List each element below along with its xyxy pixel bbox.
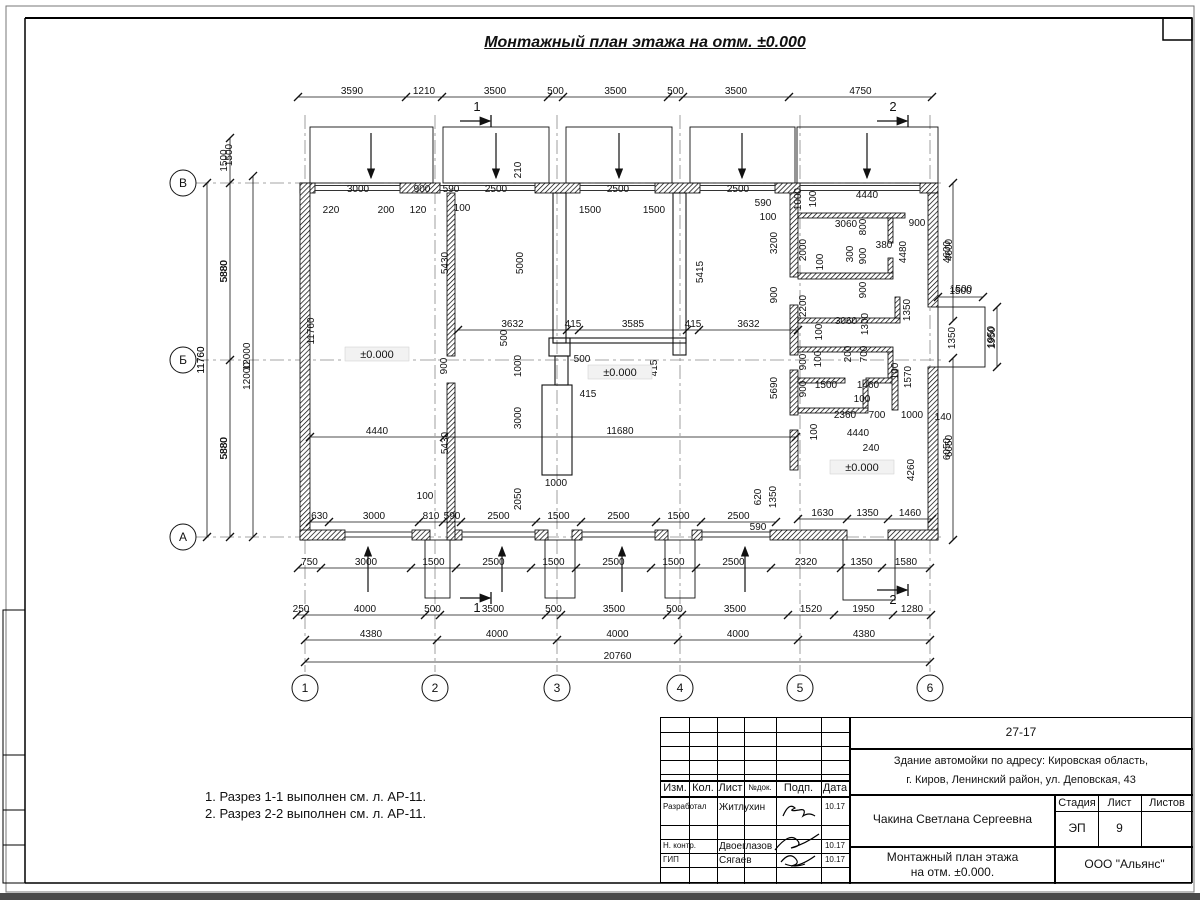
dim-label: 2500	[485, 184, 508, 195]
tb-name-gip: Сягаев	[719, 853, 775, 867]
dim-label: 4380	[360, 629, 383, 640]
dim-label: 240	[863, 443, 880, 454]
dim-label: 1500	[579, 205, 602, 216]
dim-label: 100	[815, 253, 826, 270]
dim-label: 590	[755, 198, 772, 209]
tb-date-developer: 10.17	[821, 800, 849, 815]
dim-label: 2000	[798, 238, 809, 261]
dim-label: 1350	[850, 557, 873, 568]
dim-label: 1	[473, 99, 480, 114]
dim-label: 140	[935, 412, 952, 423]
dim-label: 630	[311, 511, 328, 522]
dim-label: 900	[798, 353, 809, 370]
dim-label: А	[179, 530, 187, 544]
dim-label: 3590	[341, 86, 364, 97]
dim-label: 900	[909, 218, 926, 229]
dim-label: 3200	[769, 231, 780, 254]
dim-label: 1350	[856, 508, 879, 519]
dim-label: 300	[845, 245, 856, 262]
dim-label: 1350	[768, 485, 779, 508]
dim-label: 5430	[440, 431, 451, 454]
dim-label: 590	[443, 184, 460, 195]
dim-label: 900	[414, 184, 431, 195]
dim-label: 1280	[901, 604, 924, 615]
dim-label: 100	[890, 362, 901, 379]
dim-label: 1460	[899, 508, 922, 519]
dim-label: 5880	[219, 259, 230, 282]
dim-label: 1000	[545, 478, 568, 489]
dim-label: 900	[439, 357, 450, 374]
dim-label: 500	[666, 604, 683, 615]
tb-doc-number: 27-17	[849, 720, 1193, 746]
dim-label: 2	[432, 681, 439, 695]
tb-stage-value: ЭП	[1056, 813, 1098, 844]
tb-date-ncontrol: 10.17	[821, 839, 849, 853]
dim-label: 3500	[724, 604, 747, 615]
dim-label: 6050	[944, 434, 955, 457]
dim-label: 1500	[224, 143, 235, 166]
dim-label: 120	[410, 205, 427, 216]
dim-label: 1000	[513, 354, 524, 377]
dim-label: 1	[473, 600, 480, 615]
dim-label: 3500	[725, 86, 748, 97]
dim-label: 3000	[355, 557, 378, 568]
dim-label: 415	[685, 319, 702, 330]
dim-label: 1000	[793, 187, 804, 210]
dim-label: 12000	[242, 362, 253, 390]
dim-label: 3	[554, 681, 561, 695]
dim-label: 2	[889, 592, 896, 607]
dim-label: 2500	[607, 184, 630, 195]
tb-drawing-title-line2: на отм. ±0.000.	[851, 866, 1054, 880]
tb-name-developer: Житлухин	[719, 800, 775, 815]
dim-label: 1500	[667, 511, 690, 522]
dim-label: 1580	[895, 557, 918, 568]
tb-name-ncontrol: Двоеглазов	[719, 839, 775, 853]
dim-label: 4440	[366, 426, 389, 437]
dim-label: 2500	[482, 557, 505, 568]
dim-label: 3000	[347, 184, 370, 195]
dim-label: 900	[798, 380, 809, 397]
dim-label: 2050	[513, 487, 524, 510]
dim-label: 750	[301, 557, 318, 568]
tb-address-line1: Здание автомойки по адресу: Кировская об…	[853, 751, 1189, 771]
dim-label: 5880	[219, 436, 230, 459]
entrance-arrows-top	[371, 133, 867, 178]
dim-label: 11760	[196, 346, 207, 374]
dim-label: 2	[889, 99, 896, 114]
dim-label: 2320	[795, 557, 818, 568]
tb-client: Чакина Светлана Сергеевна	[851, 796, 1054, 844]
tb-drawing-title-line1: Монтажный план этажа	[851, 851, 1054, 865]
dim-label: 4480	[898, 240, 909, 263]
dim-label: В	[179, 176, 187, 190]
dim-label: 5430	[440, 251, 451, 274]
dim-label: 380	[876, 240, 893, 251]
tb-address-line2: г. Киров, Ленинский район, ул. Деповская…	[853, 770, 1189, 790]
dim-label: 800	[858, 218, 869, 235]
tb-col-list: Лист	[717, 781, 744, 796]
tb-stage-label: Стадия	[1056, 796, 1098, 810]
dim-label: 500	[545, 604, 562, 615]
dim-label: 1500	[547, 511, 570, 522]
dim-label: 1500	[542, 557, 565, 568]
dim-label: 250	[293, 604, 310, 615]
dim-label: Б	[179, 353, 187, 367]
tb-col-data: Дата	[821, 781, 849, 796]
tb-date-gip: 10.17	[821, 853, 849, 867]
dim-label: 2500	[727, 511, 750, 522]
dim-label: 3500	[604, 86, 627, 97]
dim-label: 200	[378, 205, 395, 216]
dim-label: 4440	[856, 190, 879, 201]
dim-label: 1210	[413, 86, 436, 97]
dim-label: 500	[424, 604, 441, 615]
dim-label: 590	[444, 511, 461, 522]
dim-label: 220	[323, 205, 340, 216]
dim-label: 2360	[834, 410, 857, 421]
dim-label: 100	[814, 323, 825, 340]
tb-company: ООО "Альянс"	[1056, 846, 1193, 884]
dim-label: ±0.000	[603, 367, 637, 379]
dim-label: 900	[769, 286, 780, 303]
drawing-sheet: 123456ВБА	[0, 0, 1200, 900]
dim-label: 5415	[695, 260, 706, 283]
tb-sheet-label: Лист	[1098, 796, 1141, 810]
dim-label: 4440	[847, 428, 870, 439]
dim-label: 415	[580, 389, 597, 400]
canopies	[310, 127, 938, 183]
dim-label: 1950	[852, 604, 875, 615]
dim-label: 11680	[606, 426, 634, 437]
dim-label: 2500	[602, 557, 625, 568]
tb-sheets-label: Листов	[1141, 796, 1193, 810]
tb-role-gip: ГИП	[663, 853, 717, 867]
dim-label: 200	[843, 345, 854, 362]
dim-label: 500	[667, 86, 684, 97]
dim-label: 1500	[643, 205, 666, 216]
dim-label: 1520	[800, 604, 823, 615]
dim-label: 1000	[901, 410, 924, 421]
dim-label: 810	[423, 511, 440, 522]
dim-label: 4000	[606, 629, 629, 640]
drawing-title: Монтажный план этажа на отм. ±0.000	[430, 34, 860, 52]
tb-sheet-value: 9	[1098, 813, 1141, 844]
dim-label: 4750	[849, 86, 872, 97]
dim-label: 1300	[860, 312, 871, 335]
dim-label: 11760	[306, 317, 317, 345]
dim-label: 5690	[769, 376, 780, 399]
dim-label: 4000	[486, 629, 509, 640]
dim-label: 415	[565, 319, 582, 330]
dim-label: 1500	[662, 557, 685, 568]
dim-label: 100	[813, 350, 824, 367]
dim-label: 3060	[835, 219, 858, 230]
dim-label: 2500	[727, 184, 750, 195]
dim-label: 3500	[484, 86, 507, 97]
dim-label: 100	[808, 190, 819, 207]
dim-label: 20760	[604, 651, 632, 662]
dim-label: 1630	[811, 508, 834, 519]
dim-label: 3060	[835, 316, 858, 327]
dim-label: 4380	[853, 629, 876, 640]
dim-label: 500	[499, 329, 510, 346]
dim-label: 4	[677, 681, 684, 695]
dim-label: 4600	[944, 238, 955, 261]
dim-label: 3585	[622, 319, 645, 330]
dim-label: 5000	[515, 251, 526, 274]
dim-label: 5	[797, 681, 804, 695]
scan-edge-strip	[0, 893, 1200, 900]
dim-label: 500	[574, 354, 591, 365]
dim-label: 3500	[603, 604, 626, 615]
dim-label: ±0.000	[845, 462, 879, 474]
dim-label: 3632	[501, 319, 524, 330]
right-porch	[938, 307, 985, 367]
dim-label: 620	[753, 488, 764, 505]
signature-developer	[777, 798, 821, 824]
note-line: 1. Разрез 1-1 выполнен см. л. АР-11.	[205, 788, 426, 805]
dim-label: 2200	[798, 294, 809, 317]
dim-label: 4260	[906, 458, 917, 481]
tb-role-ncontrol: Н. контр.	[663, 839, 717, 853]
dim-label: 6	[927, 681, 934, 695]
dim-label: 4000	[727, 629, 750, 640]
dim-label: 2500	[607, 511, 630, 522]
dim-label: 100	[809, 423, 820, 440]
note-line: 2. Разрез 2-2 выполнен см. л. АР-11.	[205, 805, 426, 822]
notes: 1. Разрез 1-1 выполнен см. л. АР-11. 2. …	[205, 788, 426, 822]
dim-label: 210	[513, 161, 524, 178]
dim-label: 3500	[482, 604, 505, 615]
dim-label: 3632	[737, 319, 760, 330]
dim-label: 100	[760, 212, 777, 223]
dim-label: 1500	[422, 557, 445, 568]
tb-col-ndok: №док.	[744, 781, 776, 796]
signature-gip	[775, 848, 821, 870]
dim-label: ±0.000	[360, 349, 394, 361]
dim-label: 1460	[857, 380, 880, 391]
dim-label: 2500	[722, 557, 745, 568]
entrance-arrows-bottom	[368, 547, 745, 592]
dim-label: 1350	[947, 326, 958, 349]
dim-label: 500	[547, 86, 564, 97]
title-block: Изм. Кол. Лист №док. Подп. Дата Разработ…	[660, 717, 1192, 883]
dim-label: 1	[302, 681, 309, 695]
dim-label: 590	[750, 522, 767, 533]
dim-label: 100	[854, 394, 871, 405]
tb-col-izm: Изм.	[661, 781, 689, 796]
dim-label: 1500	[815, 380, 838, 391]
dim-label: 700	[869, 410, 886, 421]
dim-label: 1570	[903, 365, 914, 388]
tb-col-podp: Подп.	[776, 781, 821, 796]
tb-role-developer: Разработал	[663, 800, 717, 815]
dim-label: 900	[858, 281, 869, 298]
dim-label: 1350	[902, 298, 913, 321]
dim-label: 900	[858, 247, 869, 264]
dim-label: 3000	[363, 511, 386, 522]
dim-label: 3000	[513, 406, 524, 429]
dim-label: 1950	[987, 326, 998, 349]
dim-label: 700	[859, 345, 870, 362]
dim-label: 100	[417, 491, 434, 502]
dim-label: 100	[454, 203, 471, 214]
dim-label: 2500	[487, 511, 510, 522]
dim-label: 4000	[354, 604, 377, 615]
tb-col-kol: Кол.	[689, 781, 717, 796]
top-right-stamp-box	[1163, 18, 1192, 40]
dim-label: 1500	[950, 284, 973, 295]
